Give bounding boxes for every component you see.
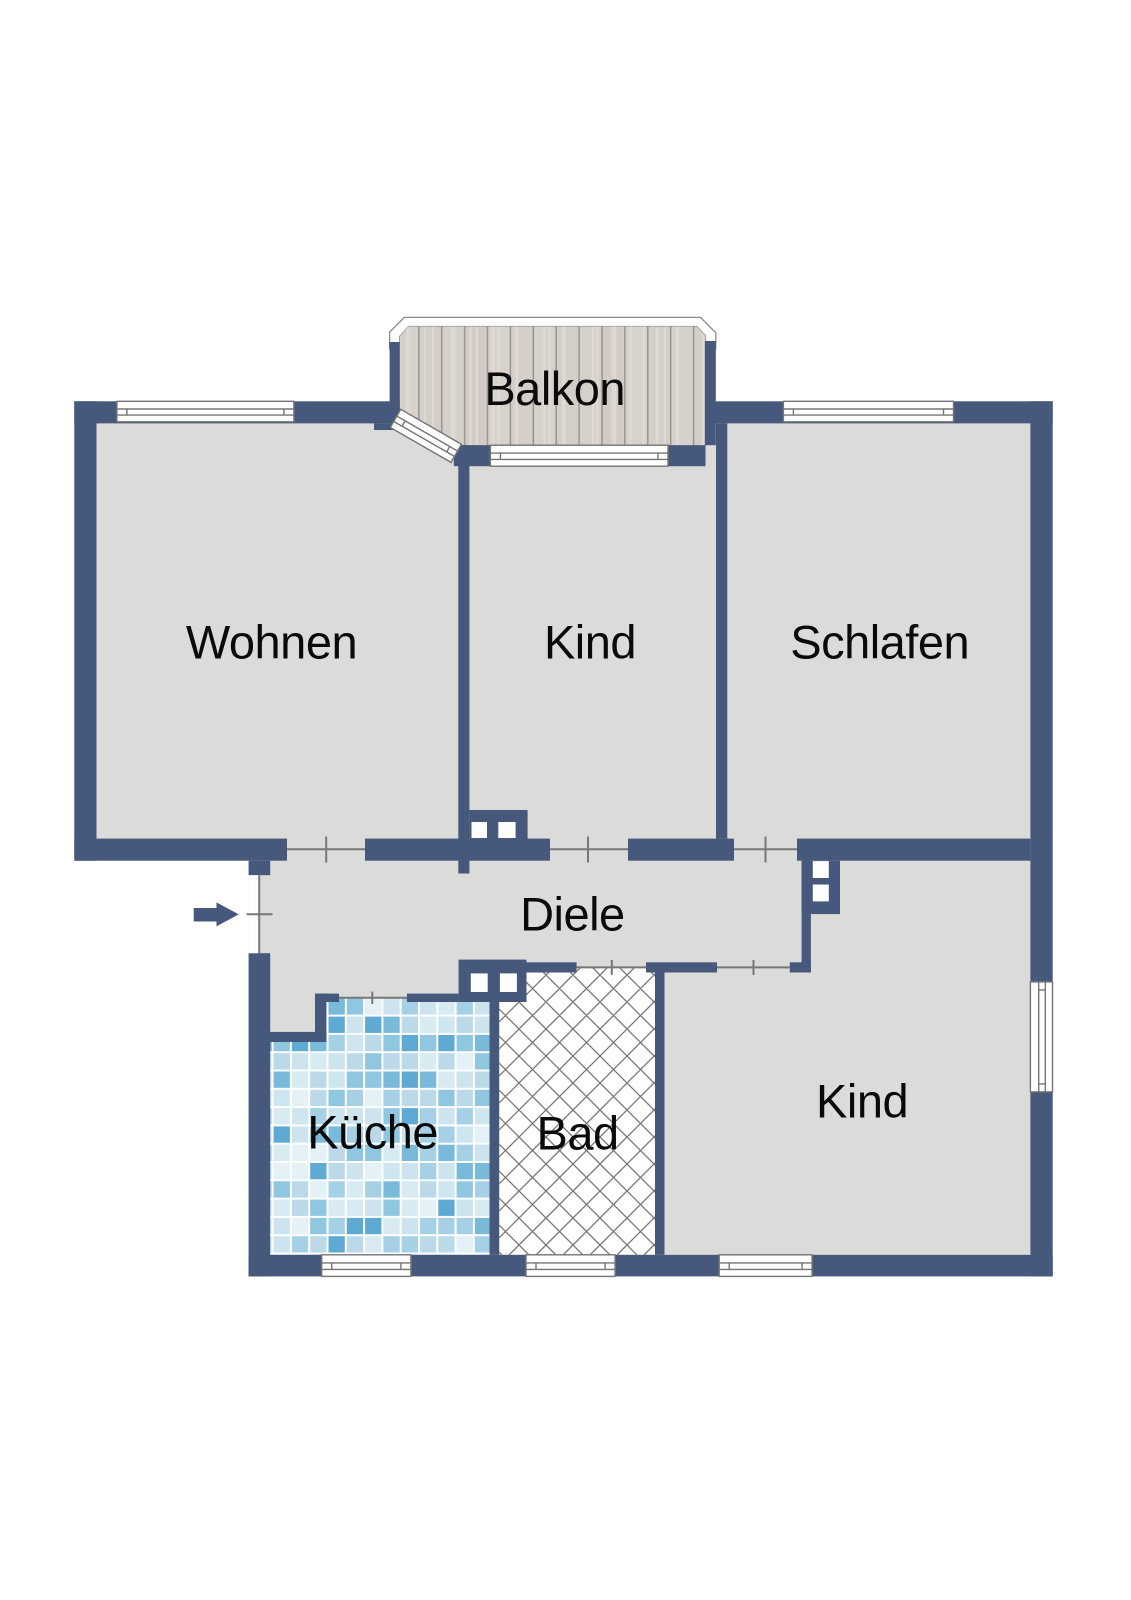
svg-text:Balkon: Balkon [484,362,625,415]
svg-text:Küche: Küche [307,1106,438,1159]
svg-text:Bad: Bad [537,1107,619,1160]
svg-text:Kind: Kind [544,616,636,669]
svg-text:Diele: Diele [520,887,625,940]
svg-text:Schlafen: Schlafen [790,616,969,669]
svg-text:Kind: Kind [816,1075,908,1128]
svg-text:Wohnen: Wohnen [186,616,357,669]
